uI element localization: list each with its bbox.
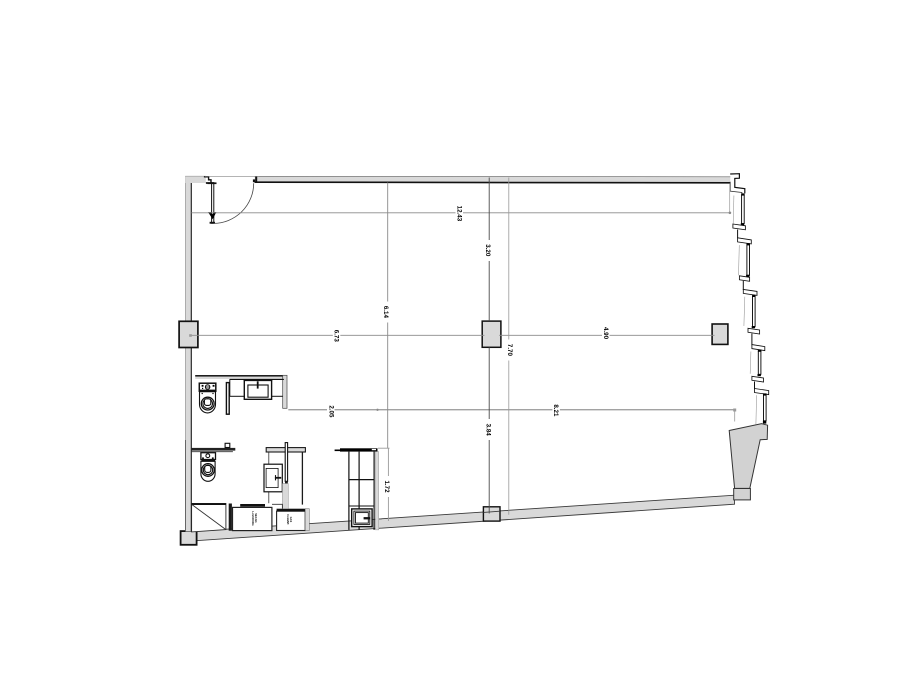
svg-text:8.21: 8.21 xyxy=(552,404,559,417)
svg-text:3.20: 3.20 xyxy=(484,244,491,257)
svg-text:SECAD.: SECAD. xyxy=(254,513,258,523)
svg-text:12.43: 12.43 xyxy=(456,206,463,222)
svg-text:7.70: 7.70 xyxy=(506,344,513,357)
svg-text:4.90: 4.90 xyxy=(602,327,609,340)
svg-text:2.05: 2.05 xyxy=(328,405,335,418)
svg-text:GAS: GAS xyxy=(289,517,293,523)
svg-text:3.84: 3.84 xyxy=(484,424,491,437)
svg-text:6.73: 6.73 xyxy=(333,330,340,343)
svg-text:6.14: 6.14 xyxy=(382,306,389,319)
svg-text:1.72: 1.72 xyxy=(383,480,390,493)
